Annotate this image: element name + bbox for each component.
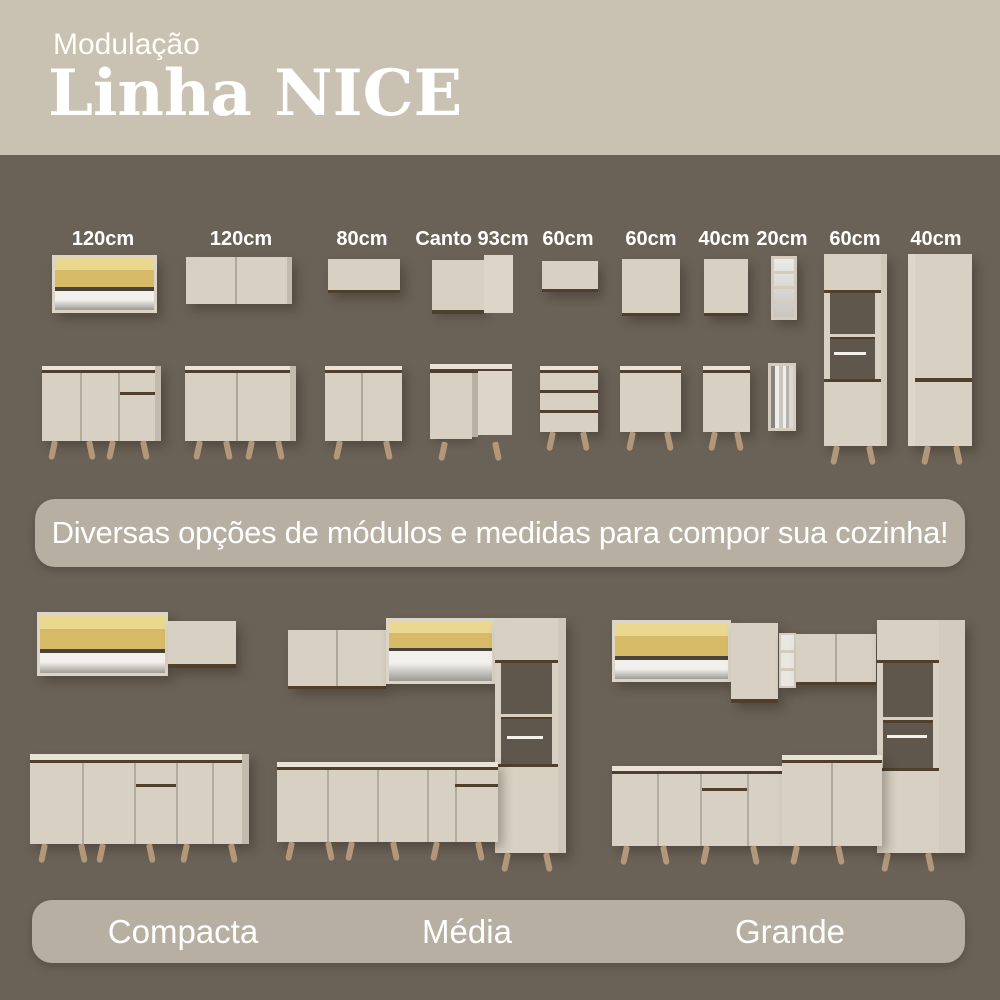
compacta-base-counter [30,754,249,844]
sizes-banner: Compacta Média Grande [32,900,965,963]
media-wall-cabinet [288,630,386,689]
size-label-compacta: Compacta [83,900,283,963]
compacta-wall-door-cabinet [168,621,236,668]
tower-rail [834,352,866,355]
middle-banner: Diversas opções de módulos e medidas par… [35,499,965,567]
module-label-80: 80cm [312,228,412,252]
cabinet-legs [180,844,238,864]
page-title: Linha NICE [48,56,462,131]
module-label-40-tall: 40cm [886,228,986,252]
cabinet-legs [285,842,335,862]
wall-cabinet-120 [186,257,292,304]
cabinet-legs [430,842,485,862]
compacta-wall-glass-cabinet [37,612,168,676]
corner-wall-cabinet-93 [432,255,513,318]
cabinet-legs [708,432,744,452]
grande-base-counter-left [612,766,783,846]
base-cabinet-40 [703,366,750,432]
base-cabinet-120 [185,366,296,441]
base-cabinet-60 [620,366,681,432]
module-label-120: 120cm [191,228,291,252]
page-background: Modulação Linha NICE 120cm 120cm 80cm Ca… [0,0,1000,1000]
drawer-unit-60 [540,366,598,432]
tall-tower-cabinet-60 [824,254,887,446]
cabinet-legs [700,846,760,866]
wall-cabinet-glass-120 [52,255,157,313]
cabinet-legs [921,446,963,466]
bottle-shelf-20 [768,363,796,431]
cabinet-legs [546,432,590,452]
cabinet-legs [48,441,96,461]
cabinet-legs [193,441,233,461]
open-shelf-unit-20 [771,256,797,320]
corner-base-side-panel [478,371,512,435]
grande-tall-tower [877,620,965,853]
corner-wall-door [432,260,484,314]
cabinet-legs [245,441,285,461]
cabinet-legs [620,846,670,866]
cabinet-legs [38,844,88,864]
grande-open-shelf-column [779,633,796,688]
cabinet-legs [830,446,876,466]
cabinet-legs [438,442,502,462]
wall-cabinet-80 [328,259,400,293]
cabinet-legs [345,842,400,862]
grande-wall-cabinet [796,634,876,685]
base-cabinet-80 [325,366,402,441]
corner-base-cabinet-93 [430,364,512,442]
grande-corner-wall-door [731,623,778,703]
module-label-120-glass: 120cm [53,228,153,252]
media-base-counter [277,762,498,842]
corner-wall-side-panel [484,255,513,313]
wall-cabinet-40 [704,259,748,316]
size-label-grande: Grande [690,900,890,963]
wall-cabinet-60 [622,259,680,316]
cabinet-legs [333,441,393,461]
base-cabinet-120-drawer [42,366,161,441]
grande-wall-glass-cabinet [612,620,731,682]
header-band: Modulação Linha NICE [0,0,1000,155]
size-label-media: Média [367,900,567,963]
tower-rail [507,736,543,739]
corner-base-door [430,373,472,439]
media-wall-glass-cabinet [386,618,495,684]
tall-cabinet-40 [908,254,972,446]
grande-base-counter-right [782,755,882,846]
banner-text: Diversas opções de módulos e medidas par… [52,515,949,551]
cabinet-legs [501,853,553,873]
cabinet-legs [881,853,935,873]
cabinet-legs [626,432,674,452]
module-label-canto-93: Canto 93cm [412,228,532,252]
cabinet-legs [106,441,150,461]
cabinet-legs [96,844,156,864]
tower-rail [887,735,927,738]
cabinet-legs [790,846,845,866]
media-tall-tower [495,618,566,853]
wall-cabinet-60-low [542,261,598,292]
